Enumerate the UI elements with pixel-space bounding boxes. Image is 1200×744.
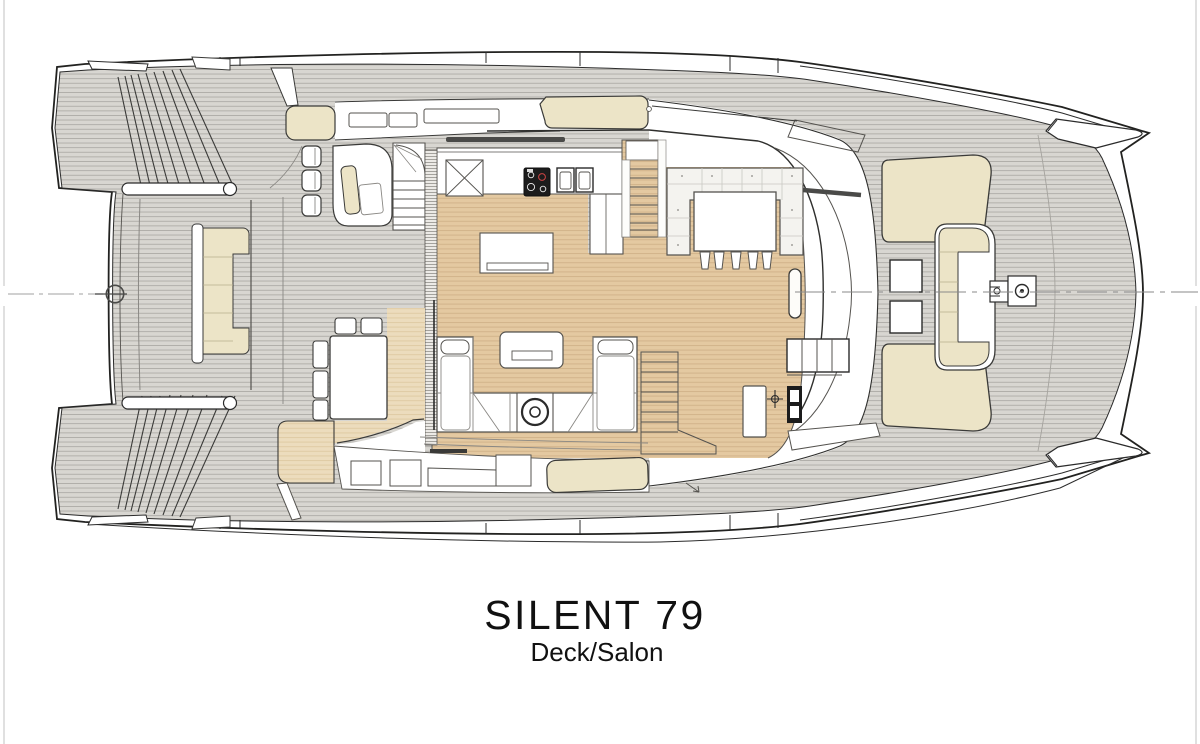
svg-text:SILENT 79: SILENT 79 <box>484 592 705 638</box>
svg-text:Deck/Salon: Deck/Salon <box>531 637 664 667</box>
